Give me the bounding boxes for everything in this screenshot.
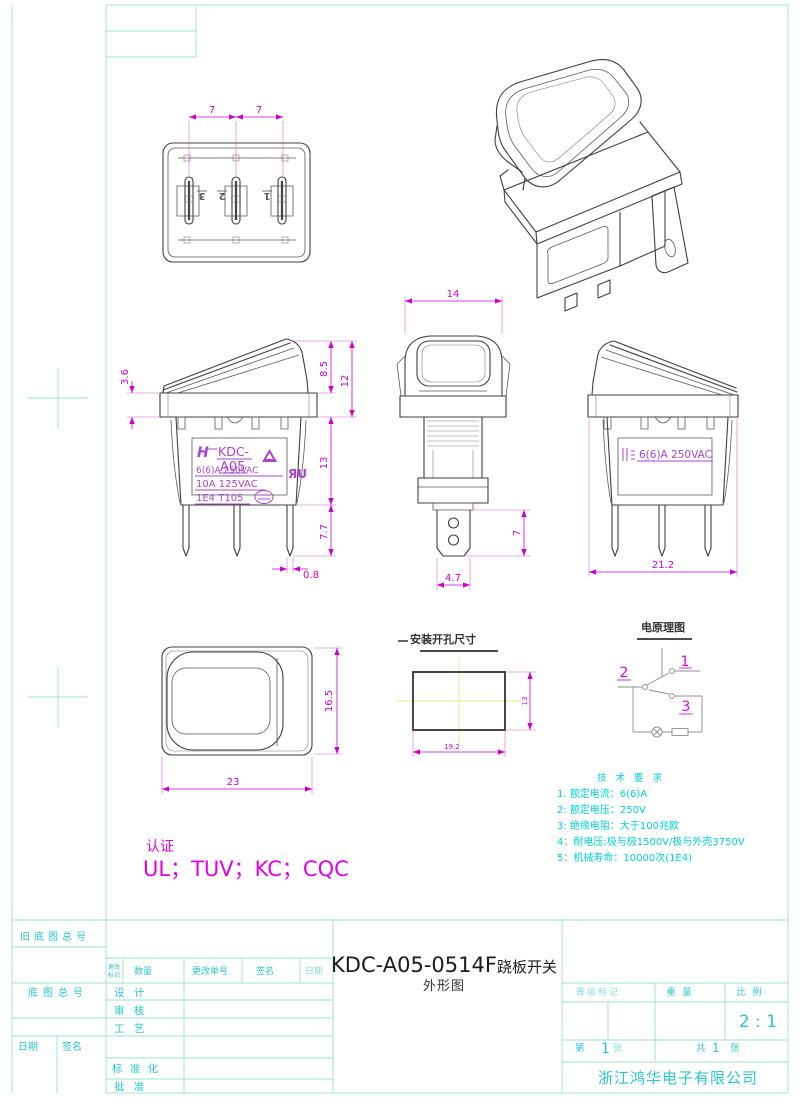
quantity-label: 数量 bbox=[134, 965, 152, 977]
registration-cross-icon bbox=[28, 667, 88, 727]
date-label: 日期 bbox=[18, 1041, 38, 1053]
change-mark-label-2: 标记 bbox=[108, 971, 120, 979]
tech-item-4: 4：耐电压:极与极1500V/极与外壳3750V bbox=[557, 835, 745, 848]
circuit-terminal-3: 3 bbox=[682, 699, 691, 715]
title-block: 旧底图总号 底图总号 日期 签名 更改 标记 数量 更改单号 签名 日期 设 计… bbox=[12, 920, 788, 1093]
brand-logo-icon: H bbox=[197, 445, 209, 461]
kc-mark-icon bbox=[623, 448, 635, 461]
weight-label: 重 量 bbox=[667, 986, 694, 998]
base-number-label: 底图总号 bbox=[28, 986, 88, 999]
top-view: 16.5 23 bbox=[162, 647, 342, 794]
drawing-subtitle: 外形图 bbox=[423, 979, 465, 994]
circuit-title: 电原理图 bbox=[641, 620, 685, 634]
date2-label: 日期 bbox=[305, 966, 323, 977]
pin-label-1: 1 bbox=[264, 190, 271, 201]
check-label: 审 核 bbox=[114, 1004, 147, 1017]
front-view: H KDC- 6(6)A 250VAC A05 10A 125VAC 1E4 T… bbox=[120, 339, 357, 581]
engineering-drawing-page: 3 2 1 7 7 bbox=[0, 0, 800, 1100]
scale-label: 比 例 bbox=[737, 986, 764, 998]
tech-item-2: 2: 额定电压：250V bbox=[557, 803, 646, 816]
resistor-icon bbox=[672, 729, 688, 736]
side-view: 14 7 4.7 bbox=[397, 289, 530, 590]
tech-item-1: 1. 额定电流：6(6)A bbox=[557, 787, 647, 800]
dim-pin-thickness: 0.8 bbox=[303, 570, 319, 581]
sheet-unit: 张 bbox=[613, 1043, 623, 1054]
total-label: 共 bbox=[696, 1043, 706, 1054]
cqc-oval-icon bbox=[255, 491, 273, 504]
total-number: 1 bbox=[712, 1041, 720, 1055]
marking-rating2: 10A 125VAC bbox=[196, 479, 258, 490]
grade-mark-label: 等级标记 bbox=[576, 986, 620, 998]
dim-pin-pitch-b: 7 bbox=[256, 105, 262, 116]
dim-bezel-height: 16.5 bbox=[324, 690, 335, 712]
change-order-label: 更改单号 bbox=[192, 965, 228, 977]
registration-cross-icon bbox=[28, 368, 88, 428]
pin-label-3: 3 bbox=[199, 190, 206, 201]
lamp-icon bbox=[652, 727, 662, 737]
circuit-diagram: 电原理图 1 2 3 bbox=[617, 620, 702, 737]
back-view: 6(6)A 250VAC 21.2 bbox=[588, 341, 738, 577]
dim-body-height: 13 bbox=[319, 457, 330, 470]
dim-bezel-width: 23 bbox=[227, 777, 240, 788]
dim-rocker-width: 14 bbox=[447, 289, 460, 300]
marking-brand: KDC- bbox=[218, 444, 249, 459]
dim-pin-height: 7.7 bbox=[319, 524, 330, 540]
dim-terminal-length: 7 bbox=[512, 530, 523, 536]
technical-requirements: 技 术 要 求 1. 额定电流：6(6)A 2: 额定电压：250V 3: 绝缘… bbox=[557, 772, 745, 864]
back-marking: 6(6)A 250VAC bbox=[639, 449, 712, 461]
pin-label-2: 2 bbox=[219, 190, 226, 201]
standardization-label: 标 准 化 bbox=[112, 1062, 160, 1075]
sheet-number: 1 bbox=[601, 1041, 610, 1057]
dim-cutout-height: 13 bbox=[521, 697, 529, 706]
certifications: 认证 UL；TUV；KC；CQC bbox=[143, 839, 349, 881]
drawing-title: KDC-A05-0514F跷板开关 bbox=[331, 953, 557, 977]
bottom-view: 3 2 1 7 7 bbox=[163, 105, 310, 262]
approve-label: 批 准 bbox=[114, 1080, 147, 1093]
total-unit: 张 bbox=[730, 1043, 740, 1054]
vde-triangle-icon bbox=[262, 449, 277, 462]
drawing-frame bbox=[12, 5, 788, 1093]
dim-flange-thickness: 3.6 bbox=[120, 369, 131, 385]
drawing-canvas: 3 2 1 7 7 bbox=[0, 0, 800, 1100]
cutout-title: 安装开孔尺寸 bbox=[410, 632, 476, 646]
sign-label: 签名 bbox=[62, 1040, 82, 1053]
circuit-terminal-2: 2 bbox=[620, 665, 629, 681]
dim-rocker-height: 8.5 bbox=[319, 361, 330, 377]
ul-mark-icon: ЯU bbox=[288, 467, 307, 481]
company-name: 浙江鸿华电子有限公司 bbox=[598, 1069, 758, 1087]
cert-label: 认证 bbox=[146, 839, 174, 855]
tech-item-3: 3: 绝缘电阻：大于100兆欧 bbox=[557, 819, 679, 832]
marking-rating3: 1E4 T105 bbox=[196, 493, 243, 504]
tech-item-5: 5：机械寿命：10000次(1E4) bbox=[557, 851, 692, 864]
cert-list: UL；TUV；KC；CQC bbox=[143, 857, 349, 881]
isometric-view bbox=[495, 60, 688, 311]
dim-cutout-width: 19.2 bbox=[444, 743, 460, 751]
tech-title: 技 术 要 求 bbox=[597, 772, 665, 784]
scale-value: 2 : 1 bbox=[739, 1012, 777, 1032]
process-label: 工 艺 bbox=[114, 1023, 147, 1035]
dim-pin-pitch-a: 7 bbox=[209, 105, 215, 116]
dim-total-height: 12 bbox=[340, 375, 351, 388]
sign2-label: 签名 bbox=[256, 965, 274, 977]
mounting-cutout-view: 安装开孔尺寸 13 19.2 bbox=[396, 632, 536, 757]
change-mark-label-1: 更改 bbox=[108, 963, 120, 971]
sheet-label: 第 bbox=[575, 1042, 585, 1054]
old-base-number-label: 旧底图总号 bbox=[20, 930, 90, 943]
dim-terminal-width: 4.7 bbox=[445, 573, 461, 584]
design-label: 设 计 bbox=[114, 986, 147, 999]
dim-body-length: 21.2 bbox=[652, 560, 674, 571]
